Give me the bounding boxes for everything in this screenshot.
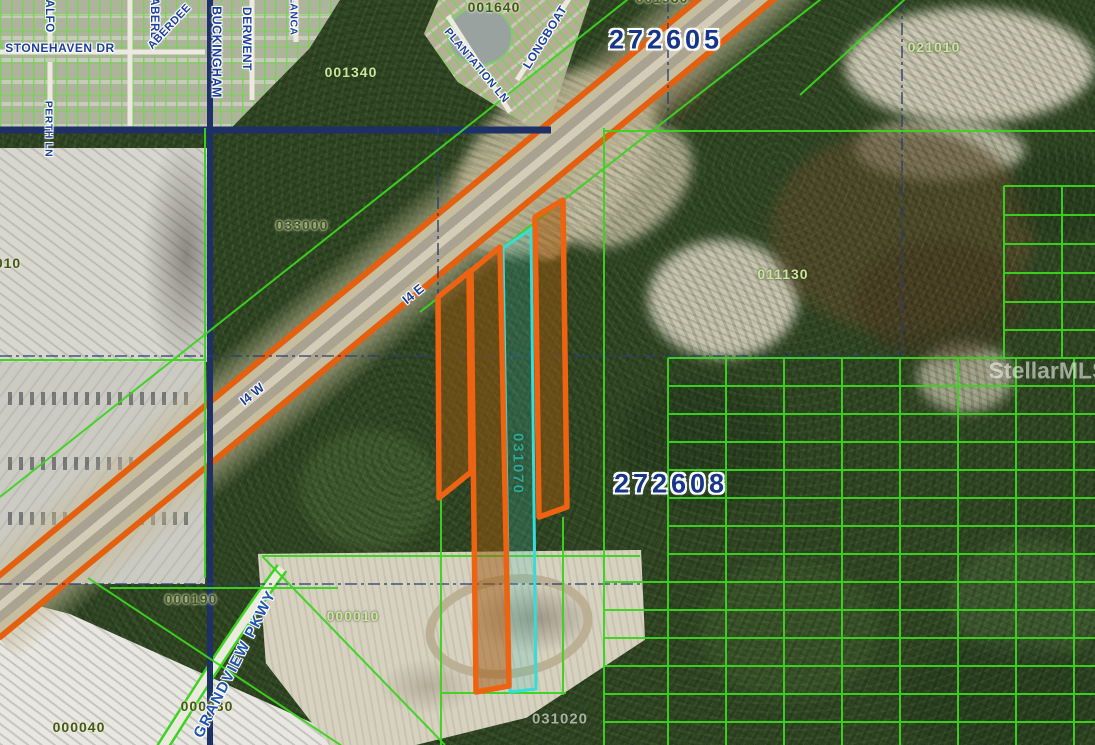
- street-label-perth-ln: PERTH LN: [43, 101, 54, 158]
- selected-parcels-orange: [438, 200, 567, 692]
- parcel-label-001930: 001930: [636, 0, 689, 5]
- street-label-buckingham: BUCKINGHAM: [210, 6, 223, 98]
- map-lines-layer: [0, 0, 1095, 745]
- street-label-alford: ALFO: [42, 0, 54, 33]
- parcel-label-000190: 000190: [165, 592, 218, 606]
- selected-parcel-east[interactable]: [535, 200, 567, 517]
- local-streets: [0, 0, 572, 126]
- parcel-label-033000: 033000: [276, 218, 329, 232]
- parcel-label-000040: 000040: [53, 720, 106, 734]
- parcel-map-viewport[interactable]: STONEHAVEN DR ALFO ABERD ABERDEE BUCKING…: [0, 0, 1095, 745]
- parcel-label-001640: 001640: [468, 0, 521, 14]
- selected-parcel-middle[interactable]: [471, 247, 509, 692]
- parcel-label-010: 010: [0, 256, 21, 270]
- parcel-label-001340: 001340: [325, 65, 378, 79]
- street-label-derwent: DERWENT: [241, 7, 253, 71]
- parcel-label-031020: 031020: [532, 712, 588, 727]
- section-label-272605: 272605: [609, 27, 723, 54]
- stellar-mls-watermark: StellarMLS: [989, 360, 1095, 383]
- parcel-label-000010: 000010: [327, 609, 380, 623]
- section-label-272608: 272608: [614, 471, 728, 498]
- street-label-stonehaven: STONEHAVEN DR: [5, 42, 114, 54]
- street-label-lancaster: LANCA: [288, 0, 299, 36]
- parcel-label-021010: 021010: [908, 40, 961, 54]
- parcel-label-011130: 011130: [757, 267, 808, 281]
- selected-parcel-west[interactable]: [438, 272, 471, 498]
- parcel-label-031070: 031070: [511, 433, 526, 495]
